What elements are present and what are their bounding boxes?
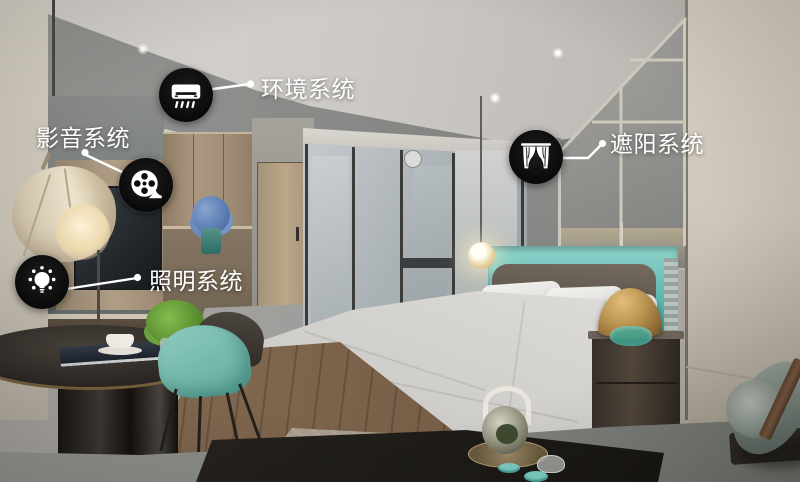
pendant-lamp [468,242,495,269]
glass-cup [537,455,565,473]
door-handle [296,227,299,241]
environment-system-hotspot[interactable] [159,68,213,122]
tea-cup [498,463,520,473]
cabinet-handle [620,222,623,248]
av-system-hotspot[interactable] [119,158,173,212]
shading-system-hotspot[interactable] [509,130,563,184]
coffee-cup [106,334,134,348]
teapot-decor [496,424,518,444]
shading-system-label: 遮阳系统 [610,131,704,157]
curtain-icon [518,139,554,175]
round-mirror [404,150,422,168]
ceiling-spotlight [552,47,564,59]
mosaic-tile-strip [664,258,678,338]
lamp-pole [97,250,100,334]
room-photo: 环境系统 影音系统 遮阳系统 照明系统 [0,0,800,482]
lighting-system-hotspot[interactable] [15,255,69,309]
lamp-glow [56,204,110,260]
lighting-system-label: 照明系统 [149,268,243,294]
vanity-counter [400,258,452,268]
teal-glass-decor [610,326,652,346]
drawer-seam [596,382,678,384]
environment-system-label: 环境系统 [261,76,355,102]
nightstand [592,336,680,434]
ceiling-spotlight [489,92,501,104]
light-bulb-icon [24,264,60,300]
film-reel-icon [128,167,164,203]
pendant-cord [480,96,482,246]
av-system-label: 影音系统 [36,125,130,151]
ceiling-spotlight [137,43,149,55]
wall-corner-edge [685,0,688,420]
flower-vase [201,228,221,254]
air-conditioner-icon [168,77,204,113]
